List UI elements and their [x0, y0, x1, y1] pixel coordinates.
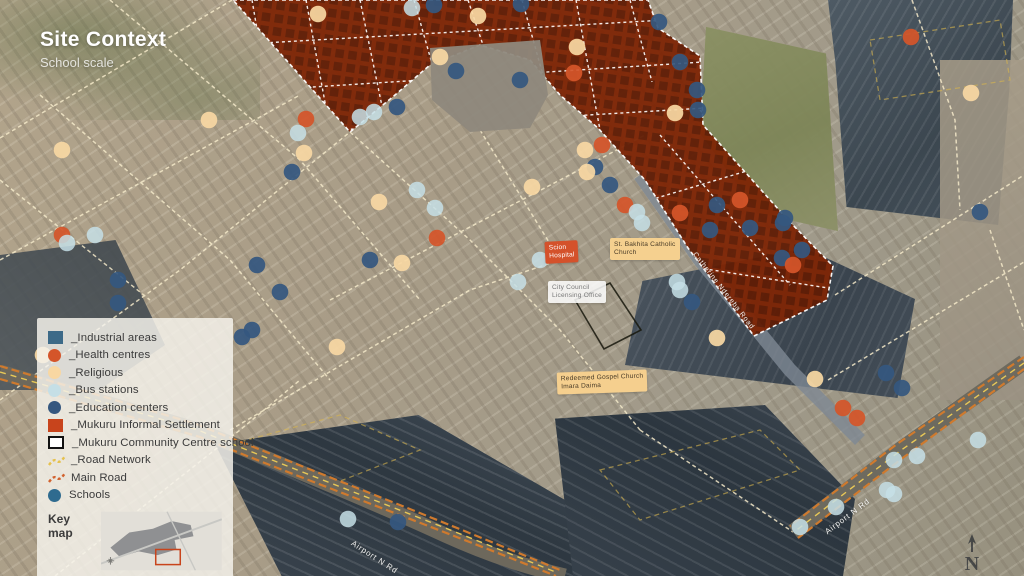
bus-station-marker [792, 519, 809, 536]
main-road-swatch-icon [48, 471, 63, 484]
key-map-thumbnail [101, 510, 222, 572]
health-centre-marker [429, 230, 446, 247]
religious-marker [329, 339, 346, 356]
legend-item-label: _Industrial areas [71, 332, 157, 344]
health-centre-marker [298, 111, 315, 128]
education-marker [512, 72, 529, 89]
religious-marker [394, 255, 411, 272]
religious-marker [577, 142, 594, 159]
legend-item: _Health centres [48, 349, 222, 362]
legend-item: Main Road [48, 471, 222, 484]
bus-station-marker [672, 282, 689, 299]
religious-marker [296, 145, 313, 162]
education-marker [742, 220, 759, 237]
bus-station-marker [409, 182, 426, 199]
bus-station-marker [59, 235, 76, 252]
education-marker [794, 242, 811, 259]
map-label-scion-hospital: ScionHospital [544, 240, 579, 263]
education-marker [110, 272, 127, 289]
north-arrow-icon: N [952, 532, 992, 574]
bus-station-marker [366, 104, 383, 121]
health-centre-marker [849, 410, 866, 427]
legend-item-label: _Mukuru Community Centre school [72, 437, 254, 449]
religious-marker [963, 85, 980, 102]
education-marker [689, 82, 706, 99]
health-centre-marker [594, 137, 611, 154]
legend-swatch-icon [48, 401, 61, 414]
education-marker [972, 204, 989, 221]
education-marker [702, 222, 719, 239]
legend-item-label: _Bus stations [69, 384, 139, 396]
legend-swatch-icon [48, 366, 61, 379]
legend-item-label: _Health centres [69, 349, 150, 361]
education-marker [672, 54, 689, 71]
bus-station-marker [886, 452, 903, 469]
religious-marker [470, 8, 487, 25]
page-title: Site Context School scale [40, 28, 166, 70]
legend-swatch-icon [48, 384, 61, 397]
religious-marker [807, 371, 824, 388]
site-context-map-poster: ScionHospitalSt. Bakhita CatholicChurchC… [0, 0, 1024, 576]
education-marker [602, 177, 619, 194]
legend-swatch-icon [48, 331, 63, 344]
religious-marker [310, 6, 327, 23]
education-marker [389, 99, 406, 116]
health-centre-marker [566, 65, 583, 82]
legend-swatch-icon [48, 419, 63, 432]
title-heading: Site Context [40, 28, 166, 52]
education-marker [775, 215, 792, 232]
education-marker [390, 514, 407, 531]
legend-items: _Industrial areas_Health centres_Religio… [48, 331, 222, 502]
school-outline-swatch-icon [48, 436, 64, 449]
key-map: Key map [48, 510, 222, 572]
education-marker [709, 197, 726, 214]
education-marker [894, 380, 911, 397]
education-marker [684, 294, 701, 311]
bus-station-marker [886, 486, 903, 503]
religious-marker [709, 330, 726, 347]
health-centre-marker [835, 400, 852, 417]
bus-station-marker [290, 125, 307, 142]
education-marker [651, 14, 668, 31]
legend-panel: _Industrial areas_Health centres_Religio… [37, 318, 233, 576]
education-marker [690, 102, 707, 119]
health-centre-marker [732, 192, 749, 209]
religious-marker [569, 39, 586, 56]
legend-item-label: _Religious [69, 367, 123, 379]
education-marker [244, 322, 261, 339]
quarry-area [430, 40, 548, 132]
bus-station-marker [87, 227, 104, 244]
bus-station-marker [510, 274, 527, 291]
legend-item-label: _Education centers [69, 402, 168, 414]
title-subheading: School scale [40, 55, 166, 70]
religious-marker [54, 142, 71, 159]
education-marker [284, 164, 301, 181]
education-marker [878, 365, 895, 382]
legend-item: _Mukuru Informal Settlement [48, 419, 222, 432]
north-indicator: N [952, 532, 992, 576]
bus-station-marker [909, 448, 926, 465]
legend-item: _Mukuru Community Centre school [48, 436, 222, 449]
bus-station-marker [828, 499, 845, 516]
legend-item: _Road Network [48, 454, 222, 467]
map-label-st-bakhita: St. Bakhita CatholicChurch [610, 238, 680, 260]
religious-marker [667, 105, 684, 122]
bus-station-marker [970, 432, 987, 449]
health-centre-marker [903, 29, 920, 46]
bus-station-marker [340, 511, 357, 528]
religious-marker [371, 194, 388, 211]
map-label-city-council: City CouncilLicensing Office [548, 281, 606, 303]
religious-marker [524, 179, 541, 196]
map-label-redeemed-gospel: Redeemed Gospel ChurchImara Daima [557, 369, 648, 394]
legend-item-label: _Road Network [71, 454, 151, 466]
religious-marker [432, 49, 449, 66]
health-centre-marker [672, 205, 689, 222]
religious-marker [201, 112, 218, 129]
legend-item-label: Schools [69, 489, 110, 501]
legend-swatch-icon [48, 349, 61, 362]
religious-marker [579, 164, 596, 181]
legend-item: _Bus stations [48, 384, 222, 397]
legend-item-label: _Mukuru Informal Settlement [71, 419, 220, 431]
bus-station-marker [427, 200, 444, 217]
road-network-swatch-icon [48, 454, 63, 467]
education-marker [249, 257, 266, 274]
legend-item: _Education centers [48, 401, 222, 414]
education-marker [448, 63, 465, 80]
legend-item: Schools [48, 489, 222, 502]
bus-station-marker [404, 0, 421, 16]
education-marker [362, 252, 379, 269]
education-marker [110, 295, 127, 312]
legend-swatch-icon [48, 489, 61, 502]
health-centre-marker [785, 257, 802, 274]
legend-item: _Industrial areas [48, 331, 222, 344]
key-map-label: Key map [48, 512, 95, 540]
bus-station-marker [634, 215, 651, 232]
education-marker [272, 284, 289, 301]
legend-item-label: Main Road [71, 472, 127, 484]
svg-text:N: N [965, 553, 980, 574]
legend-item: _Religious [48, 366, 222, 379]
